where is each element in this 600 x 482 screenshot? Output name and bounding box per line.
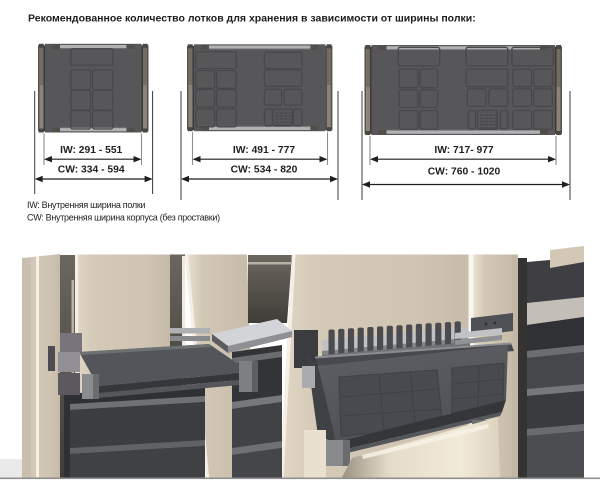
svg-text:IW: 717- 977: IW: 717- 977 (434, 145, 494, 156)
svg-text:IW: 491 - 777: IW: 491 - 777 (233, 145, 295, 156)
svg-text:CW: 534 - 820: CW: 534 - 820 (231, 165, 298, 176)
svg-text:IW: 291 - 551: IW: 291 - 551 (60, 145, 122, 156)
svg-text:CW: 334 - 594: CW: 334 - 594 (58, 165, 125, 176)
svg-text:CW: Внутренняя ширина корпуса: CW: Внутренняя ширина корпуса (без прост… (27, 213, 220, 223)
svg-text:Рекомендованное количество лот: Рекомендованное количество лотков для хр… (28, 13, 476, 25)
svg-text:IW: Внутренняя ширина полки: IW: Внутренняя ширина полки (27, 200, 145, 210)
svg-text:CW: 760 - 1020: CW: 760 - 1020 (428, 167, 501, 178)
